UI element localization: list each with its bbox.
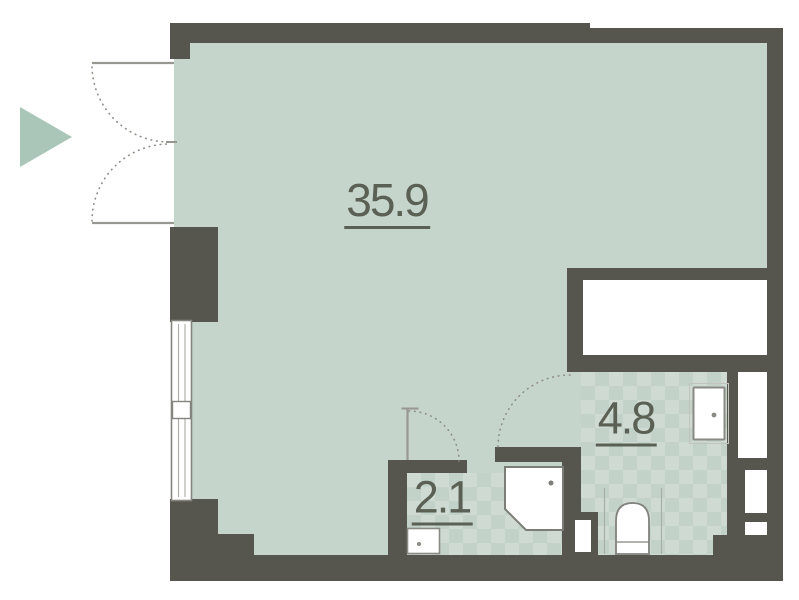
shaft-opening-1 — [738, 372, 767, 458]
floor-plan: 35.9 4.8 2.1 — [0, 0, 799, 600]
wall-step-bottom-right — [713, 535, 783, 581]
wall-right — [767, 28, 783, 581]
wall-shaft-band-1 — [738, 458, 767, 470]
shaft-opening-2 — [745, 470, 768, 513]
entrance-arrow-icon — [20, 107, 72, 167]
wall-niche-left — [567, 268, 583, 367]
wall-bathroom-top — [567, 355, 767, 372]
wall-shaft-band-2 — [745, 513, 767, 522]
entrance-door-swing-arc-bottom — [92, 144, 169, 221]
wall-bottom — [170, 555, 783, 581]
room-area-label-wc: 2.1 — [412, 475, 473, 526]
wall-top — [170, 23, 590, 43]
wall-niche-top — [567, 268, 767, 280]
wall-partition-block — [562, 512, 598, 555]
wall-entry-jamb — [170, 23, 190, 59]
storage-niche — [583, 280, 767, 355]
wall-step-bottom-left — [170, 534, 254, 555]
wall-wc-top — [495, 447, 565, 462]
wall-sink — [727, 372, 738, 470]
room-area-label-bathroom: 4.8 — [596, 396, 657, 447]
shaft-opening-3 — [745, 522, 768, 535]
room-area-label-main: 35.9 — [344, 177, 430, 229]
wall-shaft-left-lower — [727, 470, 745, 555]
wall-top-right — [590, 28, 783, 43]
entrance-door-swing-arc-top — [92, 67, 169, 142]
wall-pier-below-window — [170, 499, 218, 534]
wall-pier-above-window — [170, 227, 218, 322]
wall-wc-left-vertical — [388, 460, 407, 555]
